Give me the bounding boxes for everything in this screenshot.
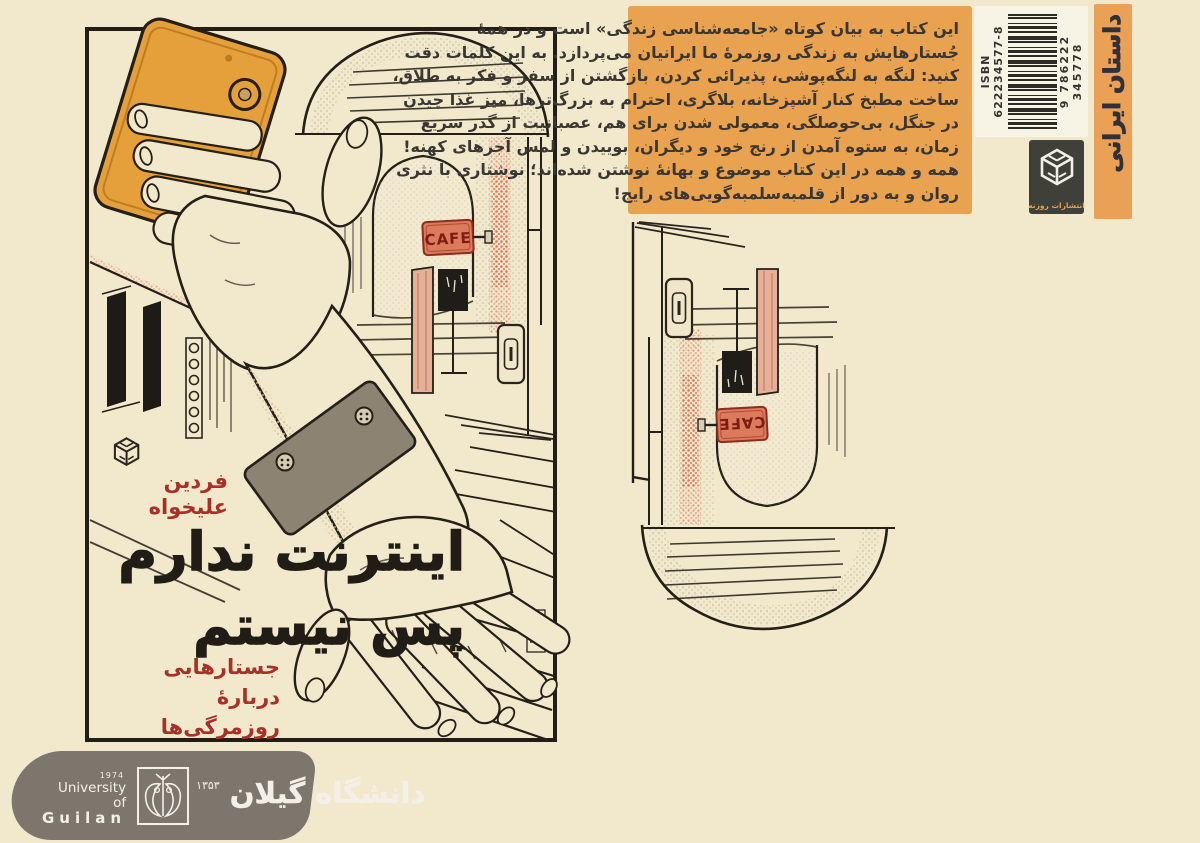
synopsis-line: جُستارهایش به زندگی روزمرهٔ ما ایرانیان …: [641, 41, 959, 65]
book-subtitle: جستارهایی دربارهٔ روزمرگی‌ها: [95, 652, 280, 742]
wristband-stud: [356, 408, 373, 425]
barcode-panel: ISBN 622234577-8 9 786222 345778: [975, 6, 1088, 137]
synopsis-box: این کتاب به بیان کوتاه «جامعه‌شناسی زندگ…: [628, 6, 972, 214]
isbn-text: ISBN 622234577-8: [979, 12, 1005, 131]
wristband-stud: [277, 454, 294, 471]
synopsis-line: این کتاب به بیان کوتاه «جامعه‌شناسی زندگ…: [641, 17, 959, 41]
university-name-persian: دانشگاه گیلان: [230, 776, 426, 810]
year-1353: ۱۳۵۳: [196, 779, 220, 792]
publisher-badge: انتشارات روزنه: [1029, 140, 1084, 214]
wall-window: [107, 291, 126, 407]
synopsis-line: ساخت مطبخ کنار آشپزخانه، بلاگری، احترام …: [641, 88, 959, 112]
publisher-logo-icon: [115, 438, 138, 465]
synopsis-line: همه و همه در این کتاب موضوع و بهانهٔ نوش…: [641, 158, 959, 182]
synopsis-line: روان و به دور از قلمبه‌سلمبه‌گویی‌های را…: [641, 182, 959, 206]
book-subtitle-line2: دربارهٔ روزمرگی‌ها: [95, 682, 280, 742]
genre-label: داستان ایرانی: [1094, 4, 1132, 218]
university-banner: 1974 University of Guilan ۱۳۵۳ دانشگاه گ…: [12, 751, 312, 840]
author-name-line1: فردین: [100, 468, 228, 494]
author-name: فردین علیخواه: [100, 468, 228, 520]
back-cover-illustration: [633, 222, 895, 629]
university-name-english: 1974 University of Guilan: [42, 764, 126, 827]
genre-strip: داستان ایرانی: [1094, 4, 1132, 219]
publisher-name: انتشارات روزنه: [1028, 201, 1085, 210]
book-title-line1: اینترنت ندارم: [95, 516, 465, 590]
back-frame-line: [633, 222, 650, 483]
wall-window: [143, 301, 161, 412]
synopsis-line: در جنگل، بی‌حوصلگی، معمولی شدن برای هم، …: [641, 111, 959, 135]
synopsis-line: کنید: لنگه به لنگه‌پوشی، پذیرائی کردن، ب…: [641, 64, 959, 88]
book-subtitle-line1: جستارهایی: [95, 652, 280, 682]
ornament-column: [186, 338, 202, 438]
publisher-logo-icon: [1037, 147, 1077, 187]
barcode-icon: [1008, 14, 1057, 129]
book-cover-spread: CAFE: [0, 0, 1200, 843]
book-title: اینترنت ندارم پس نیستم: [95, 516, 465, 664]
university-emblem-icon: [136, 766, 190, 826]
barcode-number: 9 786222 345778: [1058, 12, 1084, 131]
synopsis-line: زمان، به ستوه آمدن از رنج خود و دیگران، …: [641, 135, 959, 159]
